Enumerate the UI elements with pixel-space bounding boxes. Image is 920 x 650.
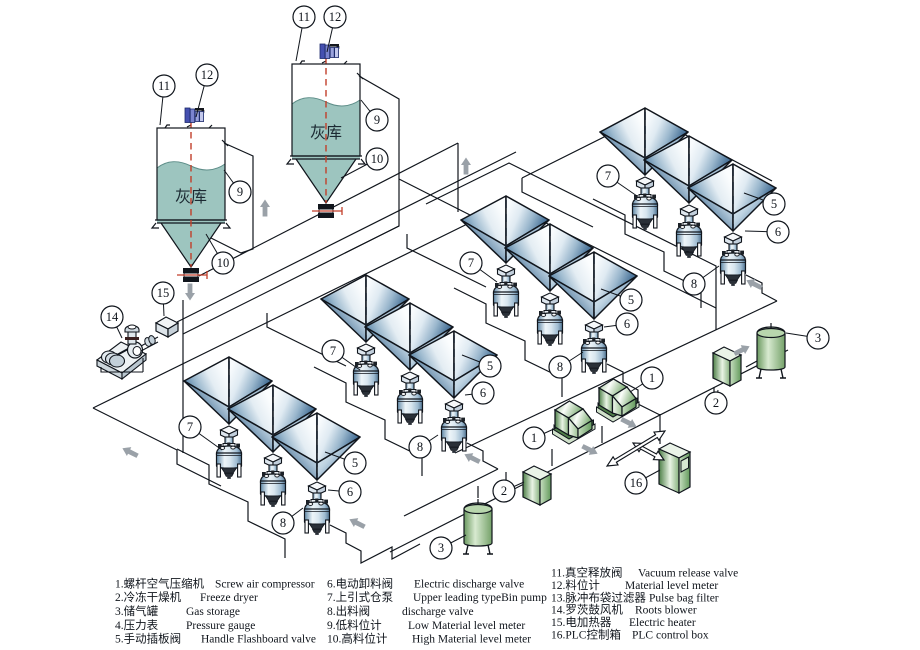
- svg-text:12.料位计: 12.料位计: [551, 578, 600, 592]
- svg-text:2: 2: [713, 396, 719, 410]
- svg-text:9: 9: [237, 185, 243, 199]
- svg-text:5.手动插板阀: 5.手动插板阀: [115, 632, 181, 646]
- svg-text:Electric discharge valve: Electric discharge valve: [414, 579, 524, 591]
- svg-text:5: 5: [771, 197, 777, 211]
- svg-text:Upper leading typeBin pump: Upper leading typeBin pump: [413, 592, 547, 604]
- svg-text:Handle Flashboard valve: Handle Flashboard valve: [201, 634, 316, 646]
- svg-text:灰库: 灰库: [175, 188, 207, 206]
- svg-text:Pressure gauge: Pressure gauge: [186, 620, 255, 632]
- svg-text:10: 10: [371, 152, 384, 166]
- svg-text:16: 16: [630, 476, 643, 490]
- svg-text:5: 5: [487, 359, 493, 373]
- svg-text:12: 12: [329, 10, 342, 24]
- svg-text:7: 7: [330, 344, 336, 358]
- svg-text:PLC control box: PLC control box: [632, 630, 709, 642]
- svg-text:6: 6: [624, 317, 630, 331]
- svg-text:8: 8: [280, 516, 286, 530]
- svg-text:3: 3: [815, 331, 821, 345]
- svg-text:8.出料阀: 8.出料阀: [327, 604, 370, 618]
- svg-text:12: 12: [201, 68, 214, 82]
- svg-text:Electric heater: Electric heater: [629, 617, 696, 629]
- svg-text:10.高料位计: 10.高料位计: [327, 632, 388, 646]
- svg-text:1.螺杆空气压缩机: 1.螺杆空气压缩机: [115, 577, 205, 591]
- svg-text:Gas storage: Gas storage: [186, 606, 240, 618]
- svg-text:5: 5: [628, 293, 634, 307]
- svg-text:2: 2: [501, 484, 507, 498]
- svg-text:3.储气罐: 3.储气罐: [115, 604, 159, 618]
- svg-text:3: 3: [438, 541, 444, 555]
- svg-text:Freeze dryer: Freeze dryer: [200, 592, 258, 604]
- svg-text:discharge valve: discharge valve: [402, 606, 474, 618]
- svg-text:9: 9: [374, 113, 380, 127]
- svg-text:Pulse bag filter: Pulse bag filter: [649, 592, 719, 604]
- svg-text:Screw air compressor: Screw air compressor: [215, 579, 315, 591]
- svg-text:2.冷冻干燥机: 2.冷冻干燥机: [115, 590, 182, 604]
- svg-text:11.真空释放阀: 11.真空释放阀: [551, 566, 622, 580]
- svg-text:1: 1: [649, 371, 655, 385]
- svg-text:14: 14: [106, 310, 119, 324]
- svg-text:6: 6: [775, 225, 781, 239]
- svg-text:14.罗茨鼓风机: 14.罗茨鼓风机: [551, 603, 623, 617]
- svg-text:8: 8: [417, 440, 423, 454]
- svg-text:灰库: 灰库: [310, 124, 342, 142]
- svg-text:7.上引式仓泵: 7.上引式仓泵: [327, 590, 394, 604]
- svg-text:5: 5: [352, 456, 358, 470]
- svg-text:Vacuum release valve: Vacuum release valve: [638, 568, 738, 580]
- svg-text:10: 10: [217, 256, 230, 270]
- svg-text:High Material level meter: High Material level meter: [412, 634, 531, 646]
- svg-text:11: 11: [158, 79, 170, 93]
- svg-text:16.PLC控制箱: 16.PLC控制箱: [551, 628, 621, 642]
- svg-text:9.低料位计: 9.低料位计: [327, 618, 382, 632]
- svg-text:1: 1: [531, 431, 537, 445]
- svg-text:6: 6: [480, 386, 486, 400]
- svg-text:7: 7: [187, 420, 193, 434]
- svg-text:Low Material level meter: Low Material level meter: [408, 620, 525, 632]
- svg-text:7: 7: [605, 169, 611, 183]
- svg-text:15.电加热器: 15.电加热器: [551, 616, 612, 629]
- svg-text:11: 11: [298, 10, 310, 24]
- svg-text:8: 8: [691, 277, 697, 291]
- svg-text:7: 7: [468, 256, 474, 270]
- svg-text:Material level meter: Material level meter: [625, 580, 718, 592]
- svg-text:6.电动卸料阀: 6.电动卸料阀: [327, 577, 393, 591]
- svg-text:13.脉冲布袋过滤器: 13.脉冲布袋过滤器: [551, 590, 646, 604]
- svg-text:8: 8: [557, 360, 563, 374]
- svg-text:4.压力表: 4.压力表: [115, 618, 159, 632]
- svg-text:Roots blower: Roots blower: [635, 605, 697, 617]
- svg-text:15: 15: [157, 286, 170, 300]
- svg-text:6: 6: [347, 485, 353, 499]
